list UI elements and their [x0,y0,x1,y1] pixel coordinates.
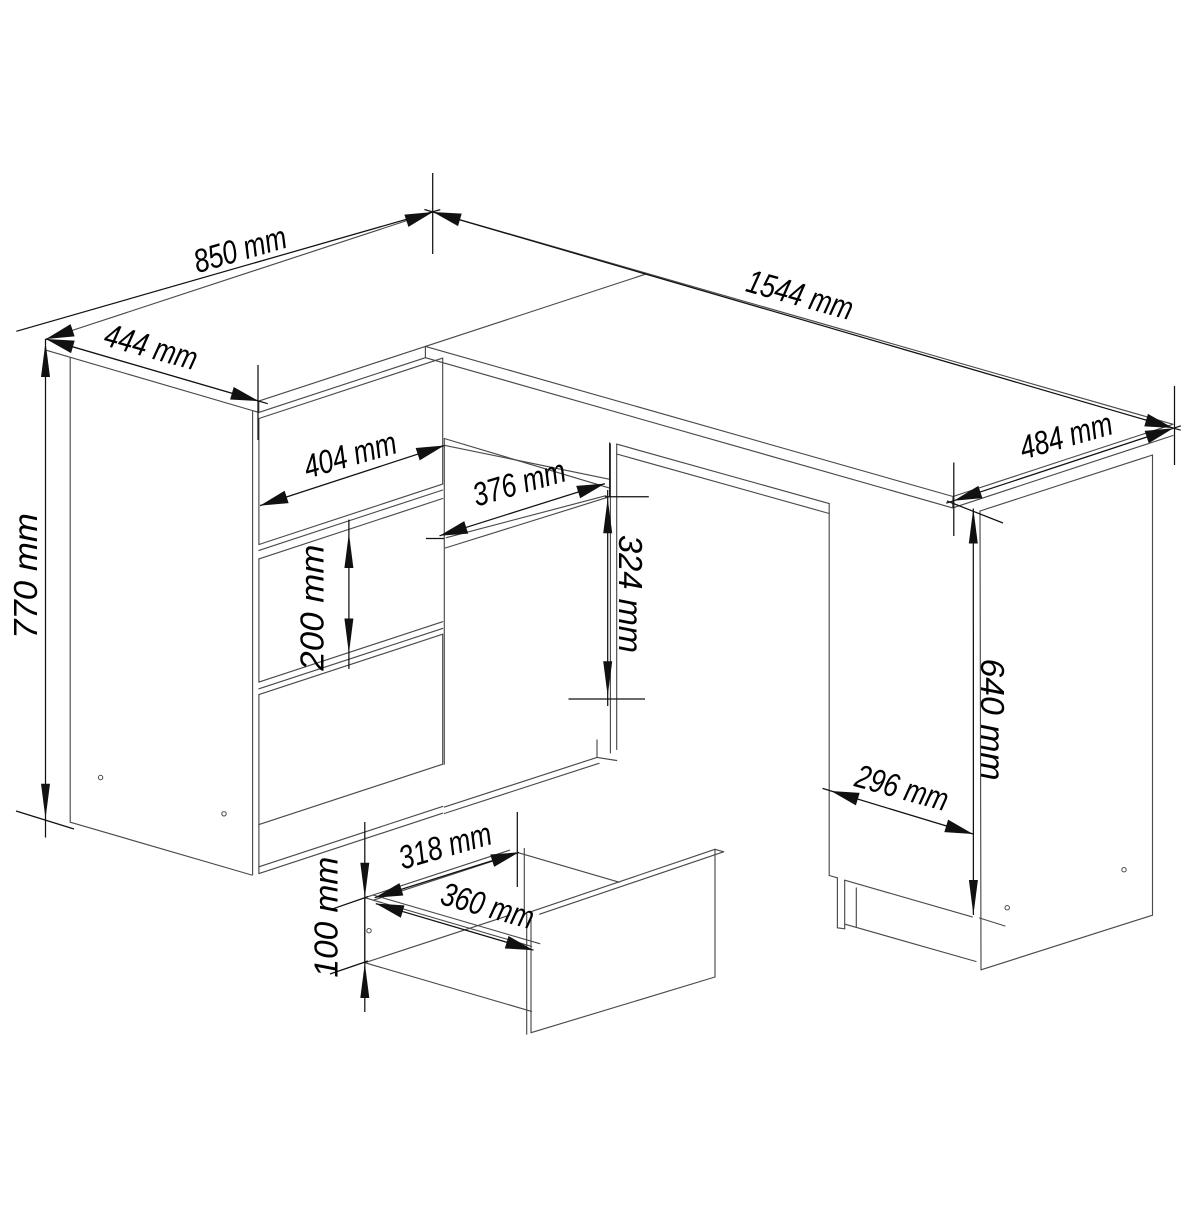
svg-text:324 mm: 324 mm [612,535,649,653]
svg-text:770 mm: 770 mm [7,513,44,639]
svg-text:200 mm: 200 mm [294,545,331,672]
svg-text:100 mm: 100 mm [308,857,345,978]
svg-text:640 mm: 640 mm [974,659,1011,781]
